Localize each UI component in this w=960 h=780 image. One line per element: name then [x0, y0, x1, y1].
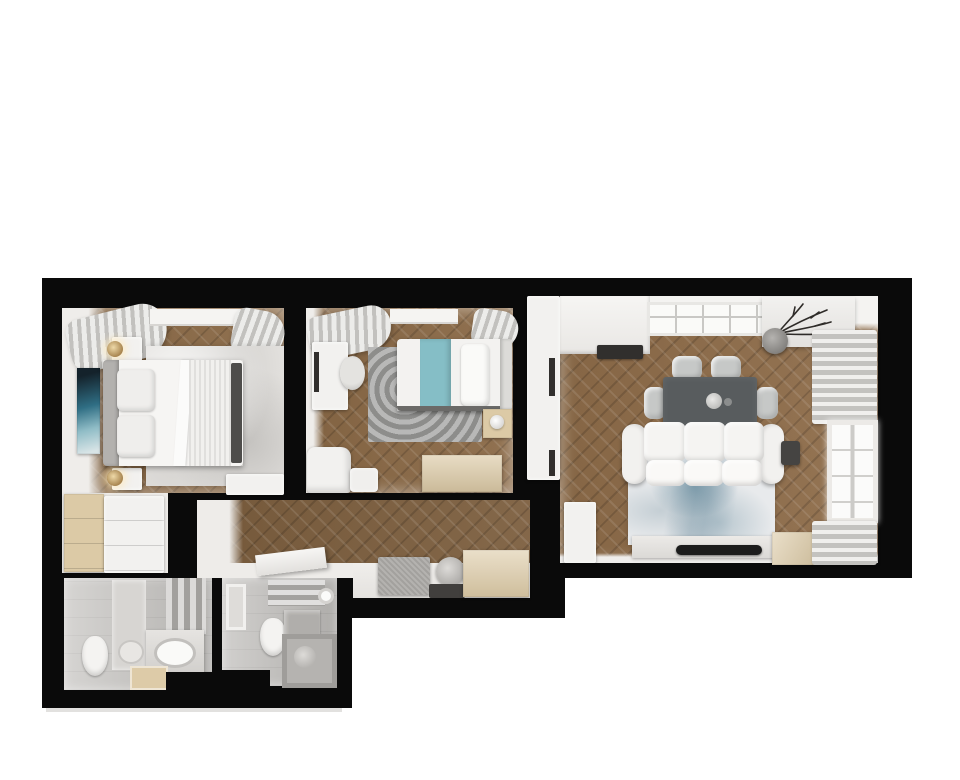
- sofa-seat-1: [644, 422, 686, 462]
- bathroom1-toilet: [82, 636, 108, 676]
- entry-doormat: [429, 584, 465, 598]
- dining-chair-4: [756, 387, 778, 419]
- table-centerpiece: [706, 393, 722, 409]
- bed2-headboard: [500, 339, 512, 411]
- bedroom2-desk-chair: [340, 356, 365, 390]
- sofa-seat-3: [724, 422, 764, 462]
- bathroom1-wall-notch: [166, 672, 212, 690]
- bathroom1-floor-mat: [130, 666, 168, 690]
- living-sofa: [622, 420, 784, 488]
- bed1-pillow-bottom: [117, 415, 155, 457]
- bathroom2-glass-band: [268, 580, 325, 606]
- sofa-seat-2: [684, 422, 726, 462]
- bedroom2-armchair: [307, 447, 351, 493]
- bathroom1-oval-basin: [154, 638, 196, 668]
- bedroom2-single-bed: [397, 339, 512, 411]
- bedroom1-lamp-bottom: [107, 470, 123, 486]
- entry-shoe-cabinet: [463, 550, 529, 597]
- bedroom2-lamp: [490, 415, 504, 429]
- floor-plant-pot: [762, 328, 788, 354]
- living-curtain-lower: [812, 521, 877, 565]
- bathroom1-shower-panel: [166, 578, 206, 634]
- hallway-corner-wall-face: [197, 500, 243, 563]
- entry-bench: [378, 557, 430, 595]
- bathroom2-shower-head: [294, 646, 316, 668]
- tv-screen: [676, 545, 762, 555]
- tall-wardrobe: [527, 296, 560, 480]
- bedroom1-wall-art: [77, 368, 100, 454]
- sofa-back-1: [646, 460, 686, 486]
- sofa-back-2: [684, 460, 724, 486]
- bathroom2-wall-notch: [222, 670, 270, 686]
- bed1-ribbed-duvet: [189, 360, 231, 466]
- bedroom2-dresser: [422, 455, 502, 492]
- bathroom2-washer-door: [318, 588, 334, 604]
- cooktop: [597, 345, 643, 359]
- table-centerpiece-small: [724, 398, 732, 406]
- wardrobe-handle-bottom: [549, 450, 555, 476]
- bed2-mattress: [397, 339, 512, 411]
- bedroom1-low-cabinet: [226, 474, 284, 495]
- floor-plan-render: [0, 0, 960, 780]
- living-curtain-upper: [812, 330, 877, 424]
- bed2-teal-runner: [420, 339, 451, 411]
- wardrobe-white-section: [104, 496, 164, 573]
- wardrobe-beige-section: [64, 494, 104, 572]
- sofa-back-3: [722, 460, 762, 486]
- bed2-pillow: [461, 344, 489, 406]
- wardrobe-handle-top: [549, 358, 555, 396]
- living-corner-cabinet: [564, 502, 596, 563]
- bathroom1-basin-reflection: [118, 640, 144, 664]
- bedroom1-window-sill: [150, 309, 242, 326]
- bathroom2-wall-window: [226, 584, 246, 630]
- living-balcony-window: [647, 302, 766, 336]
- bedroom2-ottoman: [350, 468, 378, 492]
- bedroom2-monitor: [314, 352, 319, 392]
- living-right-window: [827, 420, 878, 523]
- entry-round-mirror: [436, 557, 465, 586]
- bedroom2-window-sill: [390, 309, 458, 324]
- bed1-pillow-top: [117, 369, 155, 411]
- bed1-footboard-rail: [231, 363, 242, 463]
- bedroom1-lamp-top: [107, 341, 123, 357]
- plan-drop-shadow: [46, 708, 342, 712]
- bedroom1-double-bed: [103, 360, 243, 466]
- sofa-side-table: [781, 441, 800, 465]
